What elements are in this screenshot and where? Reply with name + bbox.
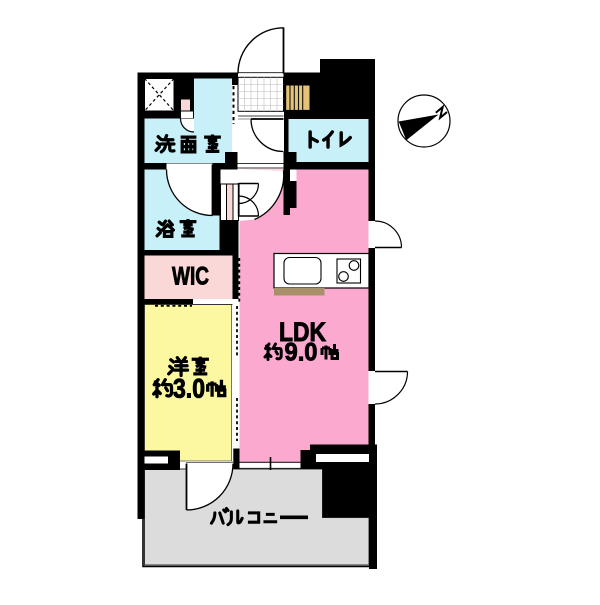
svg-text:9.0: 9.0 — [285, 339, 318, 367]
svg-text:3.0: 3.0 — [173, 374, 205, 404]
svg-text:WIC: WIC — [172, 263, 209, 291]
